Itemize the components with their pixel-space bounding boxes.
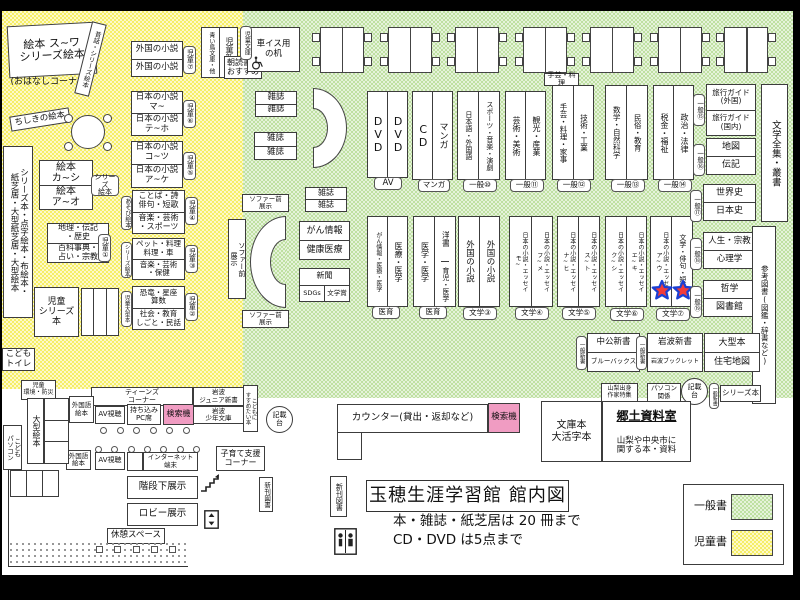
pasokon-kankei-box: パソコン 関係 bbox=[647, 383, 681, 402]
study-table-3 bbox=[447, 27, 507, 73]
kosodate-corner: 子育て支援 コーナー bbox=[216, 446, 265, 471]
iryo-igaku-shelf-1: がん情報・医療・医学医療・医学 bbox=[367, 216, 408, 307]
pet-ryori-shelf: ペット・料理 料理・車音楽・芸術 ・保健 bbox=[132, 238, 185, 280]
ippan-19-tag: 一般⑲ bbox=[690, 286, 702, 318]
sofa-tenji-left: ソファー前 展示 bbox=[228, 219, 246, 299]
gaikokugo-ehon-2: 外国語 絵本 bbox=[66, 450, 91, 470]
ryoko-guide-shelf: 旅行ガイド (外国)旅行ガイド (国内) bbox=[706, 84, 756, 136]
bottom-letterbox bbox=[0, 575, 800, 600]
shinkan-tosho-2: 新刊図書 bbox=[330, 476, 347, 517]
study-table-5 bbox=[582, 27, 642, 73]
wall-line-bottom bbox=[8, 566, 188, 567]
nihon-shosetsu-ma-shelf: 日本の小説 マ~日本の小説 テ~ホ bbox=[131, 91, 183, 136]
counter-leg bbox=[337, 432, 362, 460]
study-table-6 bbox=[650, 27, 710, 73]
jido-ogata-tag: 児童大型本 bbox=[121, 291, 132, 327]
shugei-gijutsu-shelf: 手芸・料理・家事技術・工業 bbox=[552, 85, 594, 180]
kyodo-shiryoshitsu: 郷土資料室山梨や中央市に 関する本・資料 bbox=[602, 401, 691, 462]
iwanami-shonen-box: 岩波 少年文庫 bbox=[193, 406, 244, 424]
iryo-igaku-shelf-2: 医学・医学洋書育児・医学 bbox=[413, 216, 456, 307]
kyoryu-seiza-shelf: 恐竜・星座 算数社会・教育 しごと・民話 bbox=[132, 286, 185, 330]
round-table bbox=[62, 106, 114, 158]
av-tag: AV bbox=[374, 177, 402, 190]
magazine-shelf-3: 雑誌雑誌 bbox=[305, 187, 347, 212]
bungaku-5-tag: 文学⑤ bbox=[562, 307, 596, 320]
chizu-denki-shelf: 地図伝記 bbox=[706, 138, 756, 175]
kisaidai-circle-left: 記載 台 bbox=[266, 406, 293, 433]
tetsugaku-shelf: 哲学図書館 bbox=[703, 280, 756, 317]
bungaku-3-tag: 文学③ bbox=[463, 307, 497, 320]
dvd-shelf: DVDDVD bbox=[367, 91, 408, 178]
sofa-tenji-bottom: ソファー前 展示 bbox=[242, 310, 289, 328]
sugaku-minzoku-shelf: 数学・自然科学民俗・教育 bbox=[605, 85, 648, 180]
geijutsu-kanko-shelf: 芸術・美術観光・産業 bbox=[505, 91, 546, 180]
kyukei-seats bbox=[96, 546, 176, 555]
ippan-shinsho-tag-2: 一般新書 bbox=[636, 336, 647, 370]
kodomo-pasokon: こども パソコン bbox=[3, 425, 22, 470]
magazine-shelf-1: 雑誌雑誌 bbox=[255, 91, 297, 117]
counter: カウンター(貸出・返却など) bbox=[337, 404, 488, 433]
ogata-ehon-shelf: 大型絵本 bbox=[27, 398, 44, 464]
legend-row-general: 一般書 bbox=[694, 494, 773, 520]
gaikoku-shosetsu-shelf: 外国の小説外国の小説 bbox=[458, 216, 500, 307]
bottom-left-table bbox=[10, 470, 59, 497]
loan-limit-av: CD・DVD は5点まで bbox=[393, 532, 593, 549]
nihon-essay-ku-shelf: 日本の小説・エッセイ ク~シ日本の小説・エッセイ エ~キ bbox=[605, 216, 647, 307]
white-shelf-3col bbox=[81, 288, 119, 336]
ippan-10-tag: 一般⑩ bbox=[463, 179, 497, 192]
ogata-jutaku-shelf: 大型本住宅地図 bbox=[704, 333, 760, 372]
wheelchair-icon bbox=[250, 56, 264, 70]
iwanami-junior-box: 岩波 ジュニア新書 bbox=[193, 387, 244, 406]
ippan-18-tag: 一般⑱ bbox=[690, 238, 702, 270]
iiku-tag-1: 医育 bbox=[372, 306, 400, 319]
right-letterbox bbox=[793, 0, 800, 600]
jido-6-tag: 児童⑥ bbox=[183, 100, 196, 128]
bungaku-zenshu-shelf: 文学全集・叢書 bbox=[761, 84, 788, 222]
bungaku-4-tag: 文学④ bbox=[515, 307, 549, 320]
internet-tanmatsu: インターネット 端末 bbox=[143, 452, 198, 471]
ippan-16-tag: 一般⑯ bbox=[693, 144, 705, 176]
jido-4-tag: 児童④ bbox=[185, 197, 198, 225]
zeikin-seiji-shelf: 税金・福祉政治・法律 bbox=[653, 85, 694, 180]
av-shicho-2: AV視聴 bbox=[95, 452, 125, 470]
jido-bunko-tag: 児童文庫 bbox=[240, 26, 252, 60]
shinkan-tosho-1: 新刊図書 bbox=[259, 477, 273, 512]
study-table-2 bbox=[380, 27, 440, 73]
jido-1-tag: 児童① bbox=[98, 234, 111, 262]
bungaku-7-tag: 文学⑦ bbox=[656, 308, 690, 321]
ippan-shinsho-tag-1: 一般新書 bbox=[576, 336, 587, 370]
elevator-icon bbox=[204, 510, 219, 529]
ippan-14-tag: 一般⑭ bbox=[658, 179, 692, 192]
ehon-ka-shi-shelf: 絵本 カ~シ絵本 ア~オ bbox=[39, 160, 93, 210]
av-shicho-1: AV視聴 bbox=[95, 406, 125, 424]
bunkobon-shelf: 文庫本 大活字本 bbox=[541, 401, 602, 462]
ippan-13-tag: 一般⑬ bbox=[611, 179, 645, 192]
left-letterbox bbox=[0, 0, 2, 600]
ippan-11-tag: 一般⑪ bbox=[510, 179, 544, 192]
study-table-7 bbox=[716, 27, 776, 73]
jido-3-tag: 児童③ bbox=[185, 245, 198, 273]
sekaishi-shelf: 世界史日本史 bbox=[703, 184, 756, 221]
nihongo-sports-shelf: 日本語・外国語スポーツ・音楽・演劇 bbox=[457, 91, 500, 180]
gaikoku-shosetsu-jido-shelf: 外国の小説外国の小説 bbox=[131, 41, 183, 77]
wall-line-left bbox=[8, 470, 9, 567]
series-ehon-side-tag: シリーズ絵本 bbox=[121, 242, 132, 278]
legend: 一般書 児童書 bbox=[683, 484, 784, 565]
bungaku-6-tag: 文学⑥ bbox=[610, 308, 644, 321]
ippan-12-tag: 一般⑫ bbox=[557, 179, 591, 192]
map-title: 玉穂生涯学習館 館内図 bbox=[366, 480, 569, 512]
manga-tag: マンガ bbox=[418, 179, 450, 192]
kotoba-shi-shelf: ことば・詩 俳句・短歌音楽・芸術 ・スポーツ bbox=[132, 190, 185, 234]
magazine-shelf-2: 雑誌雑誌 bbox=[254, 132, 297, 160]
iwanami-shinsho-shelf: 岩波新書岩波ブックレット bbox=[647, 333, 703, 372]
jido-2-tag: 児童② bbox=[185, 293, 198, 321]
lobby-tenji: ロビー展示 bbox=[127, 503, 198, 526]
jinsei-shukyo-shelf: 人生・宗教心理学 bbox=[703, 232, 756, 269]
nihon-shosetsu-ko-shelf: 日本の小説 コ~ツ日本の小説 ア~ケ bbox=[131, 141, 183, 188]
sanko-tosho-shelf: 参考図書(図鑑・辞書など) bbox=[752, 226, 776, 404]
restroom-icon bbox=[334, 528, 357, 555]
map-title-text: 玉穂生涯学習館 館内図 bbox=[369, 486, 566, 506]
series-tenji-kamishibai-shelf: シリーズ本・点字絵本・布絵本・ 紙芝居・大型紙芝居・大型絵本 bbox=[3, 146, 33, 318]
nihon-essay-mo-shelf: 日本の小説・エッセイ モ~日本の小説・エッセイ フ~メ bbox=[509, 216, 553, 307]
iiku-tag-2: 医育 bbox=[419, 306, 447, 319]
library-floor-map: 絵本 ス~ワ シリーズ絵本(おはなしコーナー)昔話・シリーズ絵本ちしきの絵本シリ… bbox=[0, 0, 800, 600]
mochikomi-pc: 持ち込み PC席 bbox=[127, 404, 161, 425]
sofa-tenji-top: ソファー前 展示 bbox=[242, 194, 289, 212]
legend-children-swatch bbox=[731, 530, 773, 556]
jido-series-shelf: 児童 シリーズ本 bbox=[34, 287, 79, 337]
ippan-shinsho-tag-3: 一般新書 bbox=[709, 383, 719, 409]
star-markers bbox=[651, 278, 695, 304]
stairs-icon bbox=[200, 474, 220, 492]
nihon-essay-na-shelf: 日本の小説・エッセイ ナ~ヒ日本の小説・エッセイ ス~ト bbox=[557, 216, 600, 307]
kids-toilet: こども トイレ bbox=[2, 348, 35, 371]
loan-limit-books: 本・雑誌・紙芝居は 20 冊まで bbox=[393, 513, 593, 530]
chuko-shinsho-shelf: 中公新書ブルーバックス bbox=[587, 333, 640, 372]
asobi-ehon-tag: あそび絵本 bbox=[121, 196, 132, 230]
cd-manga-shelf: CDマンガ bbox=[412, 91, 453, 180]
ippan-15-tag: 一般⑮ bbox=[693, 94, 705, 126]
empty-desk-box bbox=[127, 452, 143, 471]
gan-joho-shelf: がん情報健康医療 bbox=[299, 221, 350, 260]
jido-kankyo-bosai-box: 児童 環境・防災 bbox=[21, 380, 56, 400]
series-bon-box: シリーズ本 bbox=[720, 385, 761, 402]
study-table-4 bbox=[515, 27, 575, 73]
legend-general-swatch bbox=[731, 494, 773, 520]
kaidanshita-tenji: 階段下展示 bbox=[127, 476, 198, 499]
kodomo-susume-shelf: こどもに すすめたい本 bbox=[243, 385, 258, 432]
jido-7-tag: 児童⑦ bbox=[183, 46, 196, 74]
ippan-17-tag: 一般⑰ bbox=[690, 190, 702, 222]
kensakuki-teens: 検索機 bbox=[163, 404, 194, 425]
study-table-1 bbox=[312, 27, 372, 73]
gaikokugo-ehon-1: 外国語 絵本 bbox=[69, 396, 94, 423]
legend-row-children: 児童書 bbox=[694, 530, 773, 556]
jido-5-tag: 児童⑤ bbox=[183, 152, 196, 180]
top-letterbox bbox=[0, 0, 800, 11]
yamanashi-sakka-box: 山梨出身 作家特集 bbox=[601, 383, 638, 402]
shimbun-sdgs-shelf: 新聞SDGs文学賞 bbox=[299, 268, 350, 302]
series-ehon-tag: シリーズ 絵本 bbox=[91, 175, 119, 196]
kensakuki-main: 検索機 bbox=[488, 403, 520, 433]
legend-children-label: 児童書 bbox=[694, 536, 727, 548]
teens-seats-row1 bbox=[100, 427, 190, 435]
white-shelf-3row bbox=[44, 398, 69, 464]
legend-general-label: 一般書 bbox=[694, 500, 727, 512]
